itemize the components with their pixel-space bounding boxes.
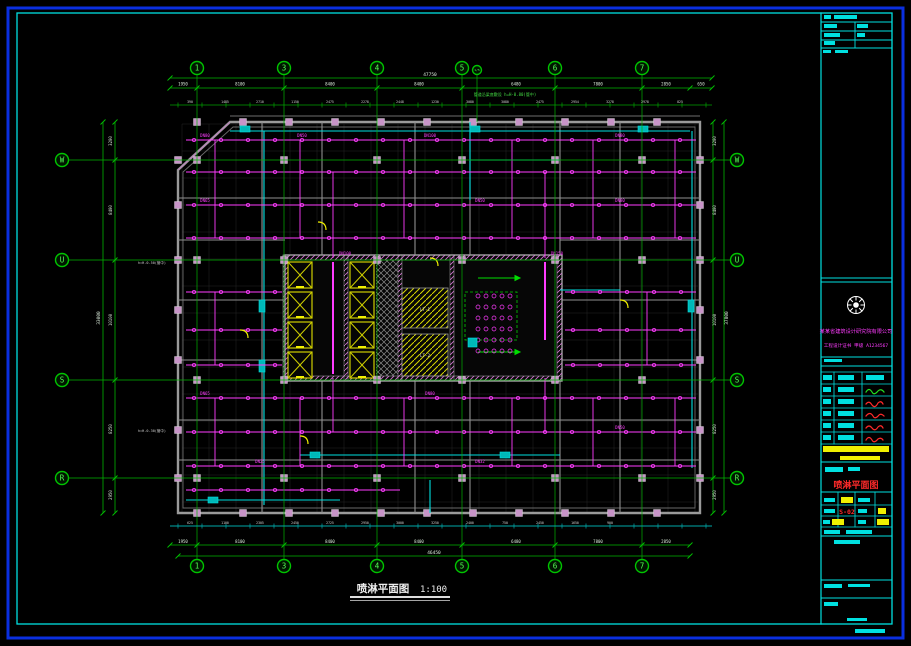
pipe-size-label: DN65 (200, 198, 210, 203)
dim-label: 7800 (593, 539, 603, 544)
column (562, 119, 569, 126)
dim-label: 3080 (501, 100, 509, 104)
footer-bar (855, 629, 885, 633)
grid-bubble-label: R (60, 474, 65, 483)
hydrant-box (500, 452, 510, 458)
dim-label: 2954 (571, 100, 579, 104)
dim-label: 6480 (511, 82, 521, 87)
dim-label: 3000 (396, 521, 404, 525)
dim-label: 2448 (396, 100, 404, 104)
column (516, 510, 523, 517)
column (424, 119, 431, 126)
elevator-door (296, 346, 304, 348)
elevator-door (358, 376, 366, 378)
label-bar (847, 618, 867, 621)
pipe-size-label: DN50 (475, 198, 485, 203)
hydrant-box (259, 360, 265, 372)
dim-label: 900 (607, 521, 613, 525)
drawing-title: 喷淋平面图 (357, 582, 410, 595)
elevator-door (358, 286, 366, 288)
sheet-number: S-02 (839, 508, 855, 516)
pipe-size-label: DN80 (615, 198, 625, 203)
dim-label: 2475 (326, 100, 334, 104)
column (608, 510, 615, 517)
institute-emblem (848, 297, 865, 314)
column (654, 510, 661, 517)
column (240, 119, 247, 126)
grid-bubble-label: 6 (553, 64, 558, 73)
dim-label: 2950 (108, 490, 113, 500)
dim-total: 47750 (423, 72, 437, 78)
pipe-size-label: DN65 (200, 391, 210, 396)
elevator-door (296, 286, 304, 288)
dim-label: 8250 (712, 424, 717, 434)
label-bar (834, 540, 860, 544)
hydrant-box (259, 300, 265, 312)
dim-label: 1950 (178, 82, 188, 87)
hydrant-box (470, 126, 480, 132)
column (240, 510, 247, 517)
dim-label: 3200 (108, 136, 113, 146)
dim-label: 390 (187, 100, 193, 104)
pipe-size-label: DN80 (425, 391, 435, 396)
dim-label: 750 (502, 521, 508, 525)
pipe-size-label: DN50 (297, 133, 307, 138)
dim-label: 2725 (326, 521, 334, 525)
grid-bubble-label: 3 (282, 562, 287, 571)
dim-label: 2710 (256, 100, 264, 104)
dim-label: 8400 (325, 82, 335, 87)
shaft-hatch (376, 260, 398, 376)
dim-label: 10100 (712, 313, 717, 326)
grid-bubble-label: 7 (640, 64, 645, 73)
highlight-bar (840, 456, 880, 460)
column (697, 427, 704, 434)
core-wall-hatch (557, 255, 562, 381)
column (175, 202, 182, 209)
highlight-bar (823, 446, 889, 452)
dim-total: 33000 (96, 311, 102, 325)
pipe-size-label: DN150 (551, 251, 564, 256)
stair-label: LT-1 (420, 307, 431, 312)
pipe-note: 管道沿梁底敷设 h=H-0.80(管中) (474, 91, 537, 97)
core-wall-hatch (344, 255, 348, 381)
label-bar (824, 602, 838, 606)
grid-bubble-label: W (60, 156, 65, 165)
dim-label: 2850 (661, 539, 671, 544)
grid-bubble-label: U (735, 256, 740, 265)
drawing-title-block-bottom: 喷淋平面图 1:100 (350, 582, 450, 601)
service-core: LT-1 LT-2 (283, 255, 562, 381)
dim-label: 2978 (641, 100, 649, 104)
dim-label: 8400 (414, 82, 424, 87)
dim-label: 625 (187, 521, 193, 525)
cad-sheet: LT-1 LT-2 DN80DN50DN100DN80DN65DN50DN80D… (0, 0, 911, 646)
column (697, 307, 704, 314)
dim-label: 2400 (466, 521, 474, 525)
elevator-door (358, 316, 366, 318)
column (654, 119, 661, 126)
grid-bubble-label: U (60, 256, 65, 265)
dim-label: 8250 (108, 424, 113, 434)
dim-label: 2450 (291, 521, 299, 525)
elevator-door (296, 316, 304, 318)
dim-label: 8400 (325, 539, 335, 544)
dim-label: 3200 (712, 136, 717, 146)
dim-label: 10100 (108, 313, 113, 326)
signature-red (866, 438, 883, 442)
signature-red (866, 414, 884, 418)
revision-table-entries (823, 15, 868, 53)
grid-bubble-label: S (735, 376, 740, 385)
dim-label: 2850 (661, 82, 671, 87)
dim-label: 2450 (536, 521, 544, 525)
column (378, 510, 385, 517)
dim-label: 6480 (511, 539, 521, 544)
elevator-door (358, 346, 366, 348)
dim-label: 8400 (414, 539, 424, 544)
grid-bubble-label: 4 (375, 64, 380, 73)
grid-bubble-label: R (735, 474, 740, 483)
column (175, 307, 182, 314)
hydrant-box (688, 300, 694, 312)
pipe-size-label: DN100 (424, 133, 437, 138)
height-note: h=H-0.50(管中) (138, 260, 166, 265)
pipe-size-label: DN80 (615, 133, 625, 138)
dim-label: 1150 (291, 100, 299, 104)
column (332, 119, 339, 126)
dim-label: 650 (697, 82, 705, 87)
sheet-info-cells (823, 497, 889, 525)
dim-label: 8400 (108, 205, 113, 215)
signature-green (866, 390, 884, 394)
pipe-size-label: DN50 (615, 425, 625, 430)
column (608, 119, 615, 126)
label-bar (824, 530, 840, 534)
column (286, 510, 293, 517)
grid-bubble-label: 5 (460, 562, 465, 571)
label-bar (824, 359, 842, 362)
dim-label: 2950 (712, 490, 717, 500)
pipe-size-label: DN100 (339, 251, 352, 256)
dim-label: 2305 (256, 521, 264, 525)
pipe-size-label: DN25 (255, 459, 265, 464)
signature-red (866, 426, 883, 430)
hydrant-box (468, 338, 477, 347)
column (175, 427, 182, 434)
column (516, 119, 523, 126)
dim-label: 2950 (361, 521, 369, 525)
core-wall-hatch (283, 255, 562, 260)
stair-label: LT-2 (420, 353, 431, 358)
signatures (866, 390, 884, 442)
dim-label: 825 (677, 100, 683, 104)
column (697, 202, 704, 209)
title-block: 某某省建筑设计研究院有限公司 工程设计证书 甲级 A1234567 (820, 13, 893, 633)
dim-label: 3250 (431, 521, 439, 525)
grid-bubble-label: W (735, 156, 740, 165)
height-note: h=H-0.30(管中) (138, 428, 166, 433)
signature-table (821, 372, 892, 444)
core-wall-hatch (398, 255, 402, 381)
drawing-scale: 1:100 (420, 585, 447, 595)
hydrant-box (208, 497, 218, 503)
grid-bubble-label: 5 (460, 64, 465, 73)
chamfer-hatch-line (178, 122, 230, 170)
dim-label: 2278 (361, 100, 369, 104)
column (470, 510, 477, 517)
company-name: 某某省建筑设计研究院有限公司 (820, 327, 893, 335)
dim-label: 1100 (221, 521, 229, 525)
signature-red (866, 402, 883, 407)
label-bar (846, 530, 872, 534)
pipe-size-label: DN32 (475, 459, 485, 464)
dim-label: 8100 (235, 82, 245, 87)
sheet-title-red: 喷淋平面图 (833, 479, 878, 491)
column (562, 510, 569, 517)
dim-label: 3080 (466, 100, 474, 104)
dim-label: 7800 (593, 82, 603, 87)
label-bar (824, 584, 842, 588)
hydrant-box (310, 452, 320, 458)
grid-bubble-label: 1 (195, 64, 200, 73)
grid-bubble-label: 6 (553, 562, 558, 571)
grid-bubble-label: S (60, 376, 65, 385)
dim-label: 1950 (178, 539, 188, 544)
dim-total: 37800 (724, 311, 730, 325)
elevator-door (296, 376, 304, 378)
grid-bubble-label: 7 (640, 562, 645, 571)
label-bar (848, 467, 860, 471)
column (332, 510, 339, 517)
grid-bubble-label: 1/5 (474, 68, 480, 72)
dim-label: 3278 (606, 100, 614, 104)
dim-label: 1485 (221, 100, 229, 104)
hydrant-box (240, 126, 250, 132)
label-bar (825, 467, 843, 472)
grid-bubble-label: 1 (195, 562, 200, 571)
column (286, 119, 293, 126)
hydrant-box (638, 126, 648, 132)
pipe-size-label: DN80 (200, 133, 210, 138)
dim-label: 2475 (536, 100, 544, 104)
column (697, 357, 704, 364)
dim-label: 1230 (431, 100, 439, 104)
dim-label: 8400 (712, 205, 717, 215)
dim-label: 1650 (571, 521, 579, 525)
grid-bubble-label: 3 (282, 64, 287, 73)
dim-label: 8100 (235, 539, 245, 544)
column (175, 357, 182, 364)
dim-total: 46450 (427, 550, 441, 556)
column (378, 119, 385, 126)
certificate-no: 工程设计证书 甲级 A1234567 (824, 342, 889, 349)
core-wall-hatch (450, 255, 454, 381)
label-bar (848, 584, 870, 587)
grid-bubble-label: 4 (375, 562, 380, 571)
